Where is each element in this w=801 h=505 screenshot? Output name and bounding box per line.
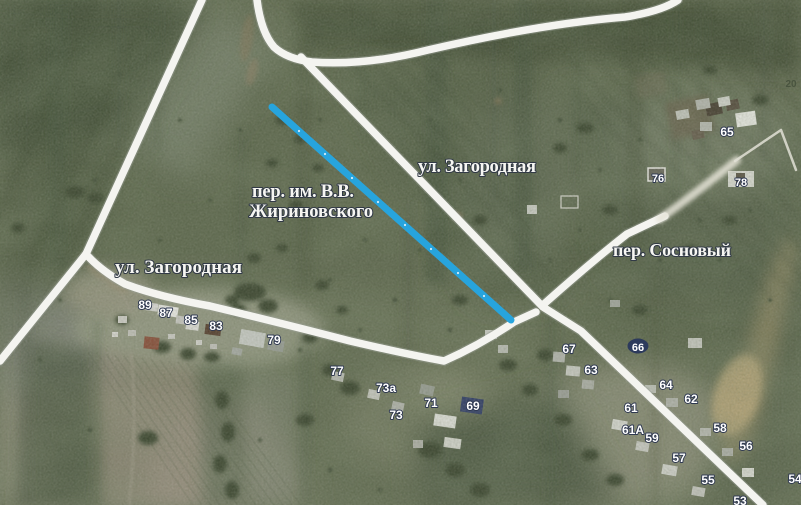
svg-text:Жириновского: Жириновского <box>249 202 373 222</box>
svg-text:73а: 73а <box>376 381 396 395</box>
svg-text:73: 73 <box>389 408 403 422</box>
svg-text:71: 71 <box>424 396 438 410</box>
svg-text:пер. Сосновый: пер. Сосновый <box>613 240 731 260</box>
svg-text:69: 69 <box>466 399 480 413</box>
svg-text:89: 89 <box>138 298 152 312</box>
svg-text:57: 57 <box>672 451 686 465</box>
svg-text:76: 76 <box>652 173 664 185</box>
svg-text:20: 20 <box>785 79 797 90</box>
svg-text:54: 54 <box>788 472 801 486</box>
svg-text:77: 77 <box>330 364 344 378</box>
svg-text:65: 65 <box>720 125 734 139</box>
svg-text:58: 58 <box>713 421 727 435</box>
svg-text:83: 83 <box>209 319 223 333</box>
svg-text:55: 55 <box>701 473 715 487</box>
svg-text:ул. Загородная: ул. Загородная <box>418 157 536 177</box>
svg-text:79: 79 <box>267 333 281 347</box>
svg-text:85: 85 <box>184 313 198 327</box>
svg-text:ул. Загородная: ул. Загородная <box>115 257 242 278</box>
svg-text:63: 63 <box>584 363 598 377</box>
svg-text:61А: 61А <box>622 423 644 437</box>
svg-text:пер. им. В.В.: пер. им. В.В. <box>252 182 354 202</box>
svg-text:66: 66 <box>632 342 644 354</box>
svg-text:59: 59 <box>645 431 659 445</box>
svg-text:62: 62 <box>684 392 698 406</box>
svg-text:87: 87 <box>159 306 173 320</box>
svg-text:64: 64 <box>659 378 673 392</box>
svg-text:78: 78 <box>735 177 747 189</box>
svg-text:56: 56 <box>739 439 753 453</box>
svg-text:67: 67 <box>562 342 576 356</box>
svg-text:53: 53 <box>733 494 747 505</box>
svg-text:61: 61 <box>624 401 638 415</box>
